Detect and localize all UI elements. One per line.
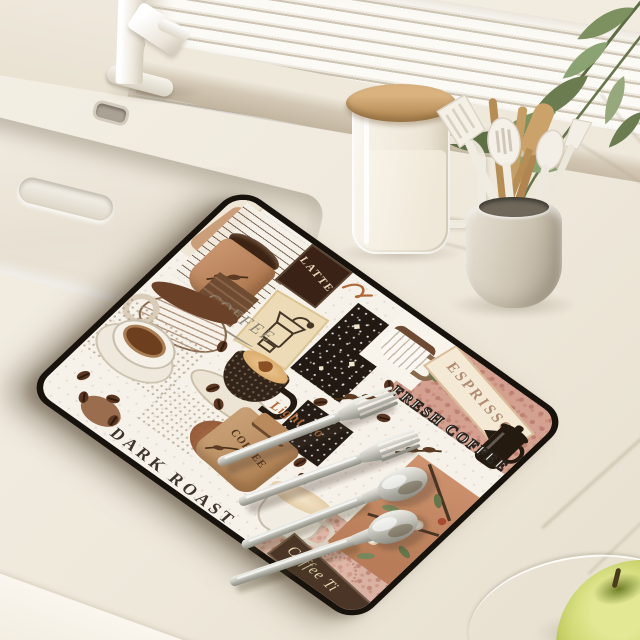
pitcher-glass-highlight (364, 110, 369, 244)
utensil-crock (466, 204, 562, 308)
cutlery-set (120, 352, 460, 622)
latte-text: LATTE (297, 255, 335, 293)
star-sparkle (354, 324, 360, 329)
crock-mouth (479, 197, 549, 217)
kitchen-scene: LATTE (0, 0, 640, 640)
utensil-set (428, 84, 598, 210)
